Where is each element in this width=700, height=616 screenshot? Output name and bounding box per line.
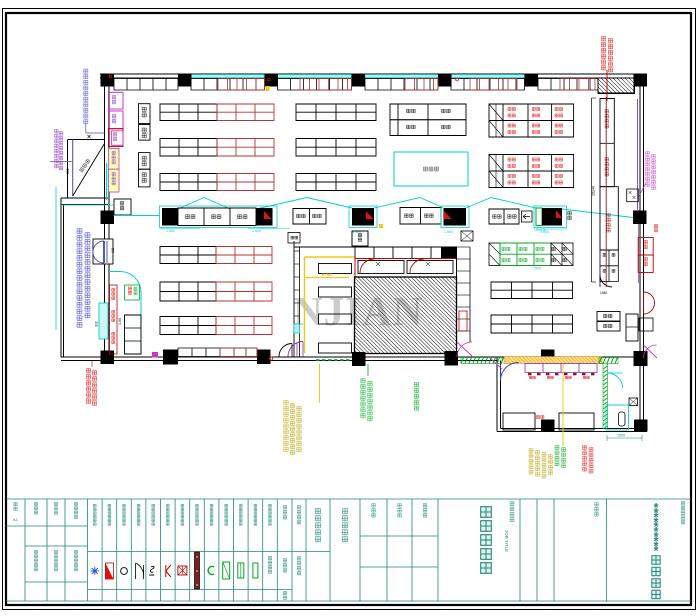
svg-text:15240: 15240	[592, 186, 596, 196]
svg-text:1.500: 1.500	[166, 229, 175, 233]
svg-text:A1: A1	[13, 517, 19, 522]
svg-text:5780: 5780	[322, 272, 333, 277]
svg-text:1.00: 1.00	[118, 318, 122, 325]
svg-text:1.500: 1.500	[444, 230, 453, 234]
svg-text:302: 302	[95, 321, 99, 327]
svg-text:302: 302	[66, 168, 70, 174]
svg-text:100x100: 100x100	[534, 228, 546, 232]
svg-text:1480: 1480	[600, 291, 607, 295]
svg-text:JOB TITLE: JOB TITLE	[504, 530, 509, 552]
svg-text:900: 900	[111, 247, 115, 253]
svg-text:1500: 1500	[533, 267, 541, 271]
svg-text::: :	[512, 522, 513, 527]
svg-text:1.500: 1.500	[252, 229, 261, 233]
svg-text:1500: 1500	[617, 434, 625, 438]
